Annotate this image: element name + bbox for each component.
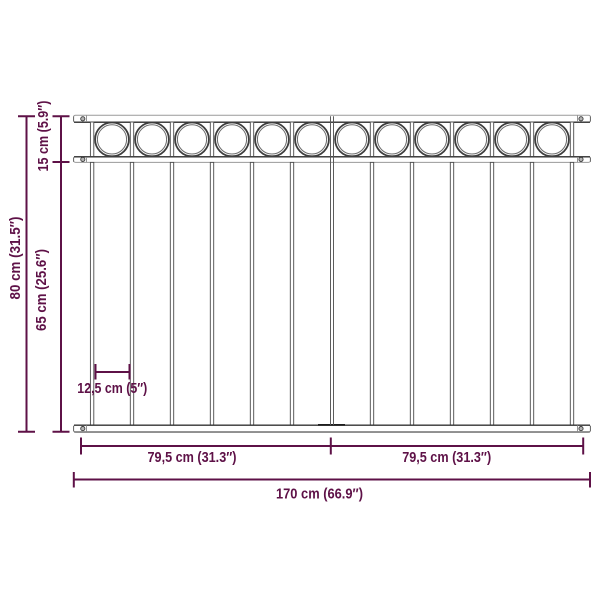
svg-text:79,5 cm (31.3″): 79,5 cm (31.3″)	[148, 449, 237, 466]
svg-text:170 cm (66.9″): 170 cm (66.9″)	[276, 486, 363, 503]
svg-text:15 cm (5.9″): 15 cm (5.9″)	[35, 101, 52, 172]
svg-text:65 cm (25.6″): 65 cm (25.6″)	[33, 249, 50, 331]
svg-text:80 cm (31.5″): 80 cm (31.5″)	[7, 217, 24, 300]
svg-text:79,5 cm (31.3″): 79,5 cm (31.3″)	[402, 449, 491, 466]
svg-text:12,5 cm (5″): 12,5 cm (5″)	[77, 380, 147, 397]
